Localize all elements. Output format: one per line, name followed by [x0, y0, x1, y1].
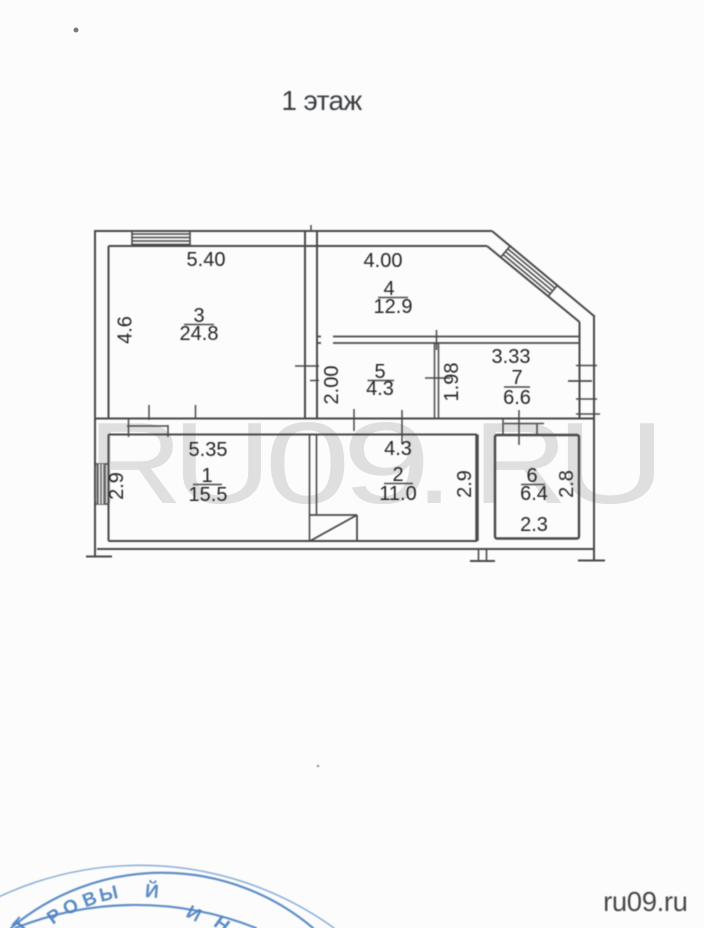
- svg-text:12.9: 12.9: [374, 296, 413, 318]
- svg-text:4.3: 4.3: [366, 378, 394, 400]
- svg-text:5.40: 5.40: [187, 249, 226, 271]
- svg-text:6.4: 6.4: [520, 483, 548, 505]
- svg-text:2.9: 2.9: [106, 472, 128, 500]
- svg-text:11.0: 11.0: [379, 483, 416, 505]
- svg-text:Й: Й: [144, 880, 160, 903]
- svg-text:2.00: 2.00: [321, 366, 343, 405]
- svg-text:6.6: 6.6: [503, 387, 531, 409]
- svg-text:15.5: 15.5: [189, 484, 228, 506]
- svg-text:1 этаж: 1 этаж: [281, 85, 362, 116]
- svg-text:ru09.ru: ru09.ru: [603, 886, 687, 917]
- svg-text:5.35: 5.35: [189, 439, 228, 461]
- svg-text:7: 7: [511, 367, 522, 389]
- svg-text:4.00: 4.00: [364, 250, 403, 272]
- svg-text:2.3: 2.3: [520, 514, 548, 536]
- svg-text:24.8: 24.8: [180, 323, 219, 345]
- svg-text:3.33: 3.33: [492, 346, 531, 368]
- svg-text:4.6: 4.6: [115, 316, 137, 344]
- svg-text:4.3: 4.3: [384, 438, 412, 460]
- svg-text:1.98: 1.98: [441, 363, 463, 402]
- svg-text:2.8: 2.8: [556, 470, 578, 498]
- svg-text:2.9: 2.9: [454, 470, 476, 498]
